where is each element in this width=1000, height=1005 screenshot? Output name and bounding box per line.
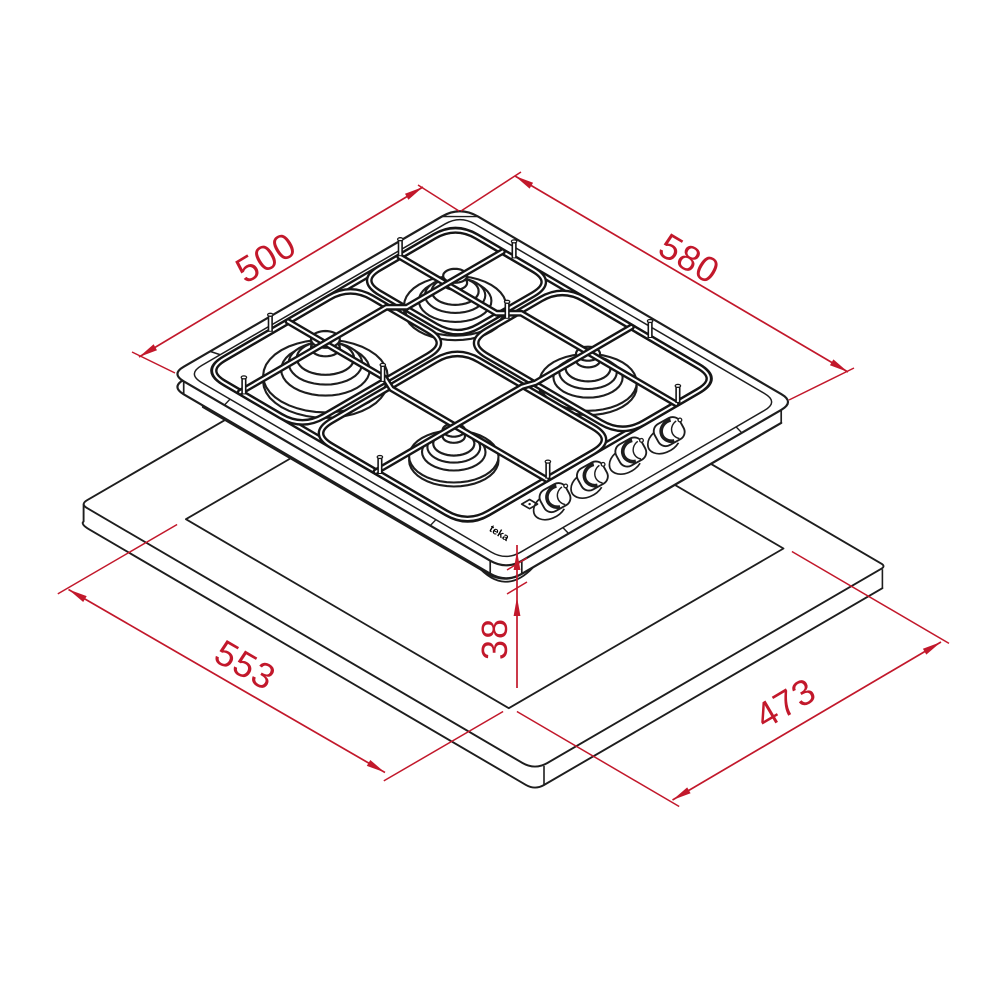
- svg-text:38: 38: [474, 618, 515, 660]
